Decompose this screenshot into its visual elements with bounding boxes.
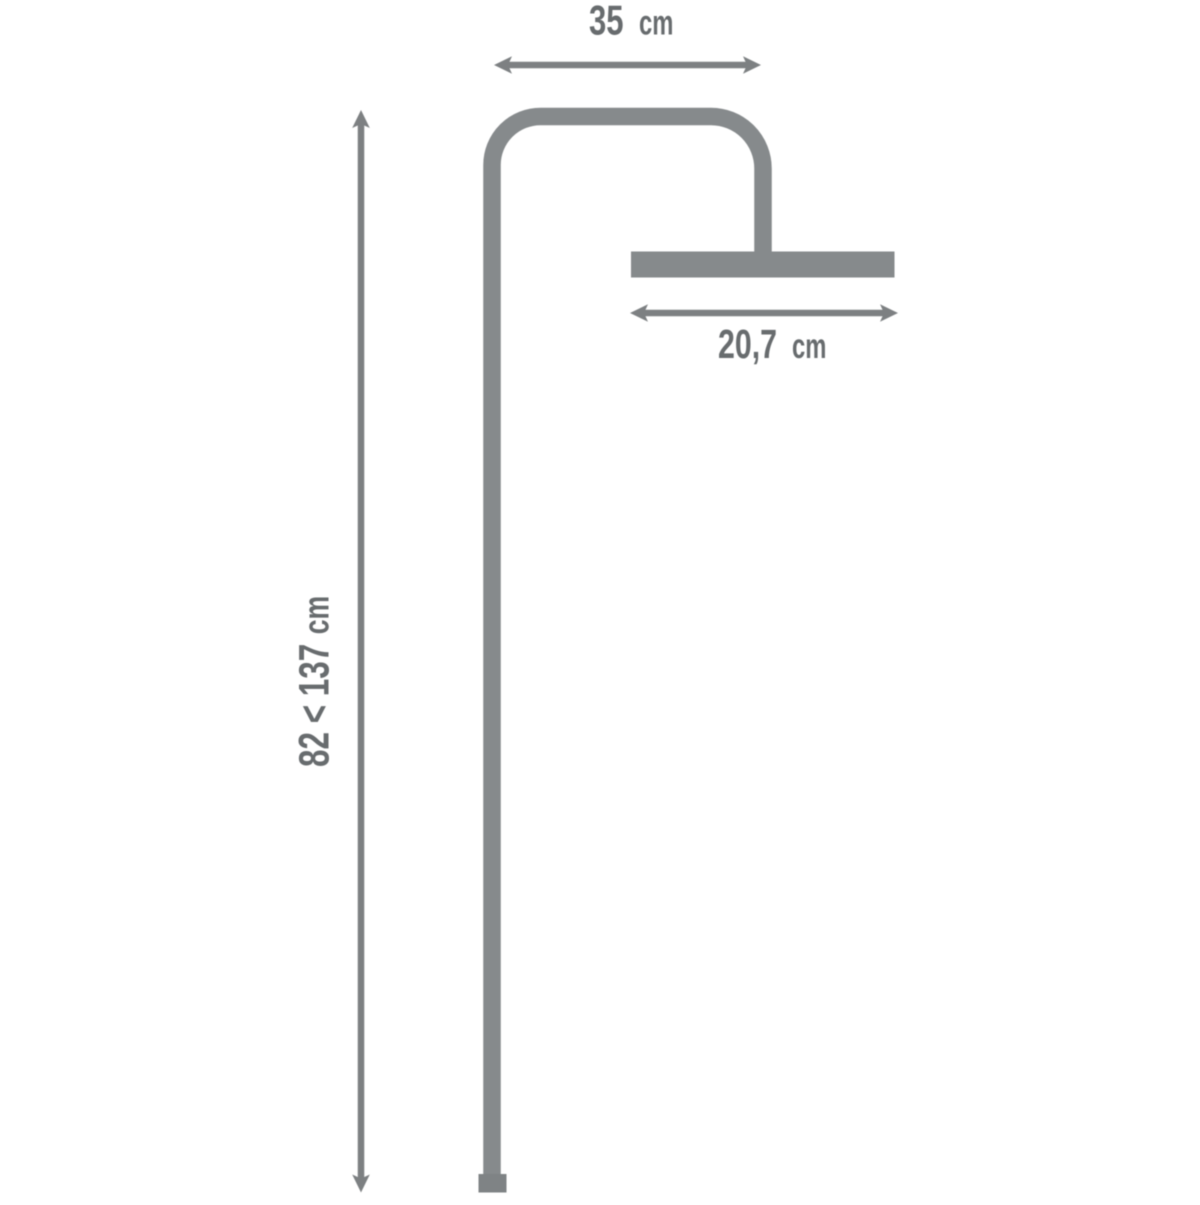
svg-text:35: 35	[589, 0, 624, 44]
svg-text:cm: cm	[792, 328, 826, 367]
svg-text:cm: cm	[639, 4, 673, 43]
svg-text:20,7: 20,7	[718, 320, 777, 367]
svg-text:82 < 137 cm: 82 < 137 cm	[290, 596, 338, 767]
